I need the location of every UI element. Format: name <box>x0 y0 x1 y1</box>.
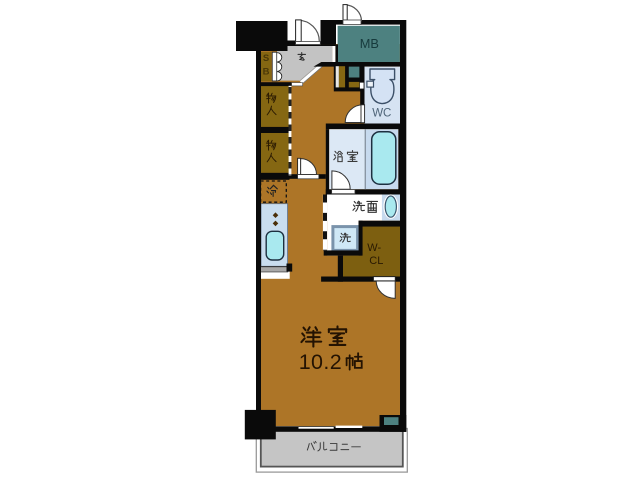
svg-text:B: B <box>263 67 270 78</box>
svg-text:S: S <box>263 53 269 64</box>
svg-text:10.2: 10.2 <box>299 350 342 374</box>
svg-text:CL: CL <box>369 255 383 267</box>
svg-text:MB: MB <box>360 36 379 51</box>
svg-text:WC: WC <box>372 108 391 120</box>
svg-text:W-: W- <box>367 242 381 254</box>
